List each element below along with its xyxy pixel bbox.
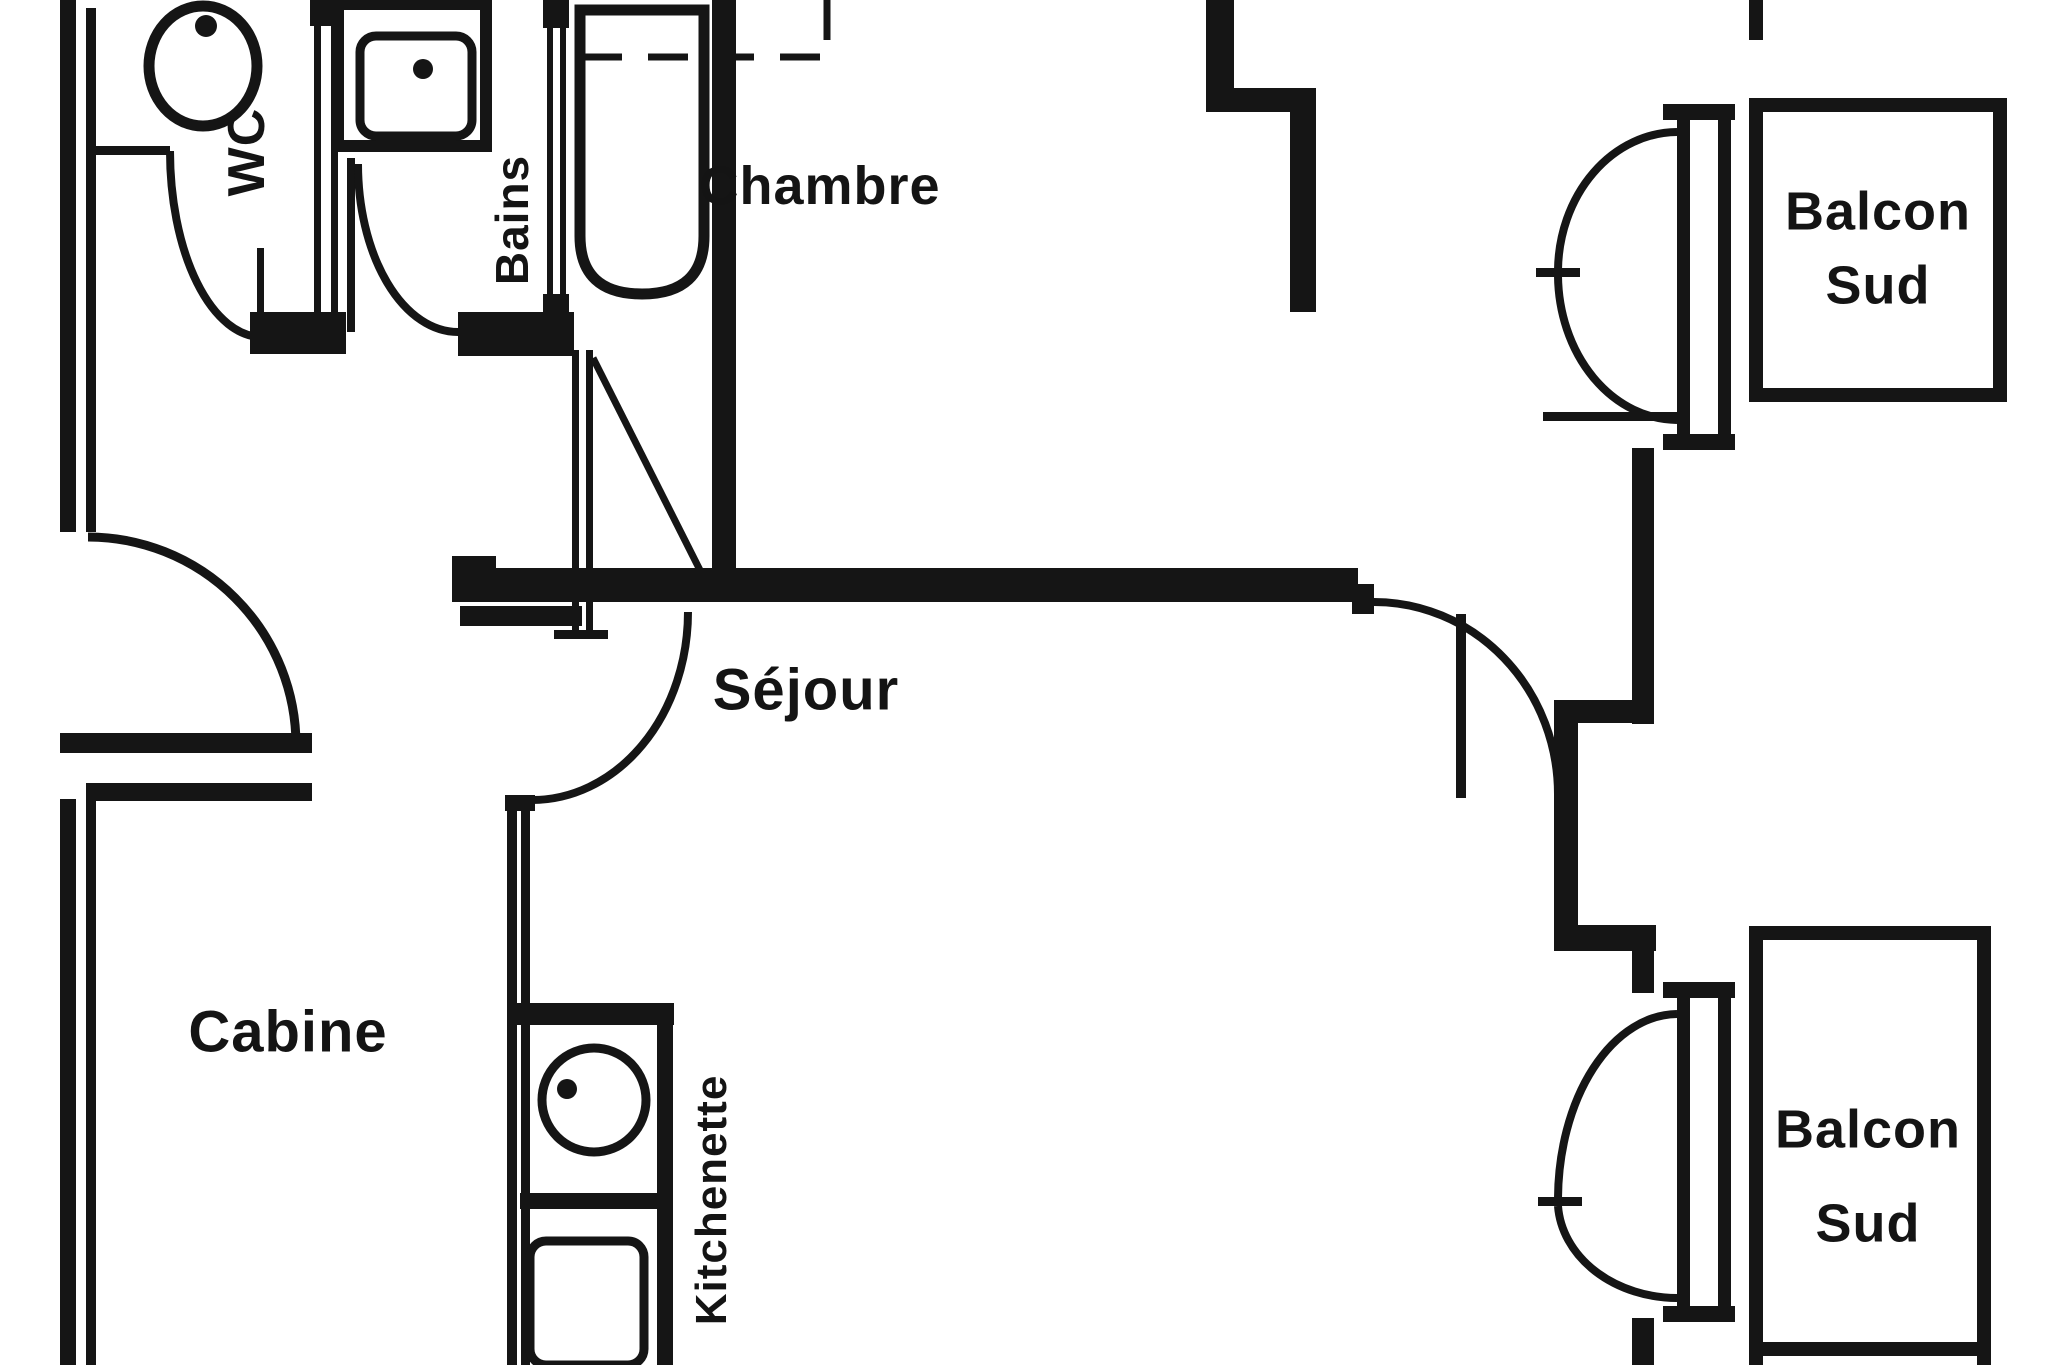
- entry-door-arc: [88, 537, 296, 745]
- room-label-chambre: Chambre: [699, 155, 940, 217]
- exterior-wall-left: [60, 0, 96, 1365]
- room-label-wc: WC: [217, 108, 277, 197]
- kitchen-sink-fixture: [542, 1048, 646, 1152]
- sejour-door-right: [1374, 602, 1558, 798]
- balcony-door-bottom: [1538, 982, 1735, 1322]
- hall-wall: [60, 733, 312, 801]
- room-label-cabine: Cabine: [188, 999, 387, 1066]
- exterior-wall-right-bottom: [1632, 1318, 1654, 1365]
- bains-door: [347, 158, 458, 332]
- bains-partition-wall: [543, 0, 569, 338]
- room-label-balcon-top-line2: Sud: [1826, 252, 1931, 320]
- bathtub-fixture: [580, 10, 704, 294]
- room-label-sejour: Séjour: [713, 657, 900, 724]
- chambre-left-wall-lower: [712, 354, 736, 574]
- exterior-wall-right-middle: [1554, 448, 1656, 993]
- kitchenette-walls: [516, 1003, 674, 1365]
- room-label-balcon-bottom-line2: Sud: [1816, 1190, 1921, 1258]
- floor-plan: WC Bains Chambre Balcon Sud Séjour Cabin…: [0, 0, 2048, 1365]
- room-label-balcon-bottom-line1: Balcon: [1775, 1096, 1961, 1164]
- sejour-door-arc-left: [532, 612, 688, 800]
- exterior-wall-right-upper: [1206, 0, 1316, 312]
- room-label-balcon-top-line1: Balcon: [1785, 178, 1971, 246]
- wc-bottom-wall: [250, 312, 346, 354]
- room-label-bains: Bains: [485, 155, 539, 285]
- floor-plan-drawing: [0, 0, 2048, 1365]
- room-label-kitchenette: Kitchenette: [687, 1075, 737, 1326]
- balcony-door-top: [1536, 104, 1735, 450]
- stove-fixture: [530, 1241, 644, 1365]
- washbasin-fixture: [338, 4, 486, 146]
